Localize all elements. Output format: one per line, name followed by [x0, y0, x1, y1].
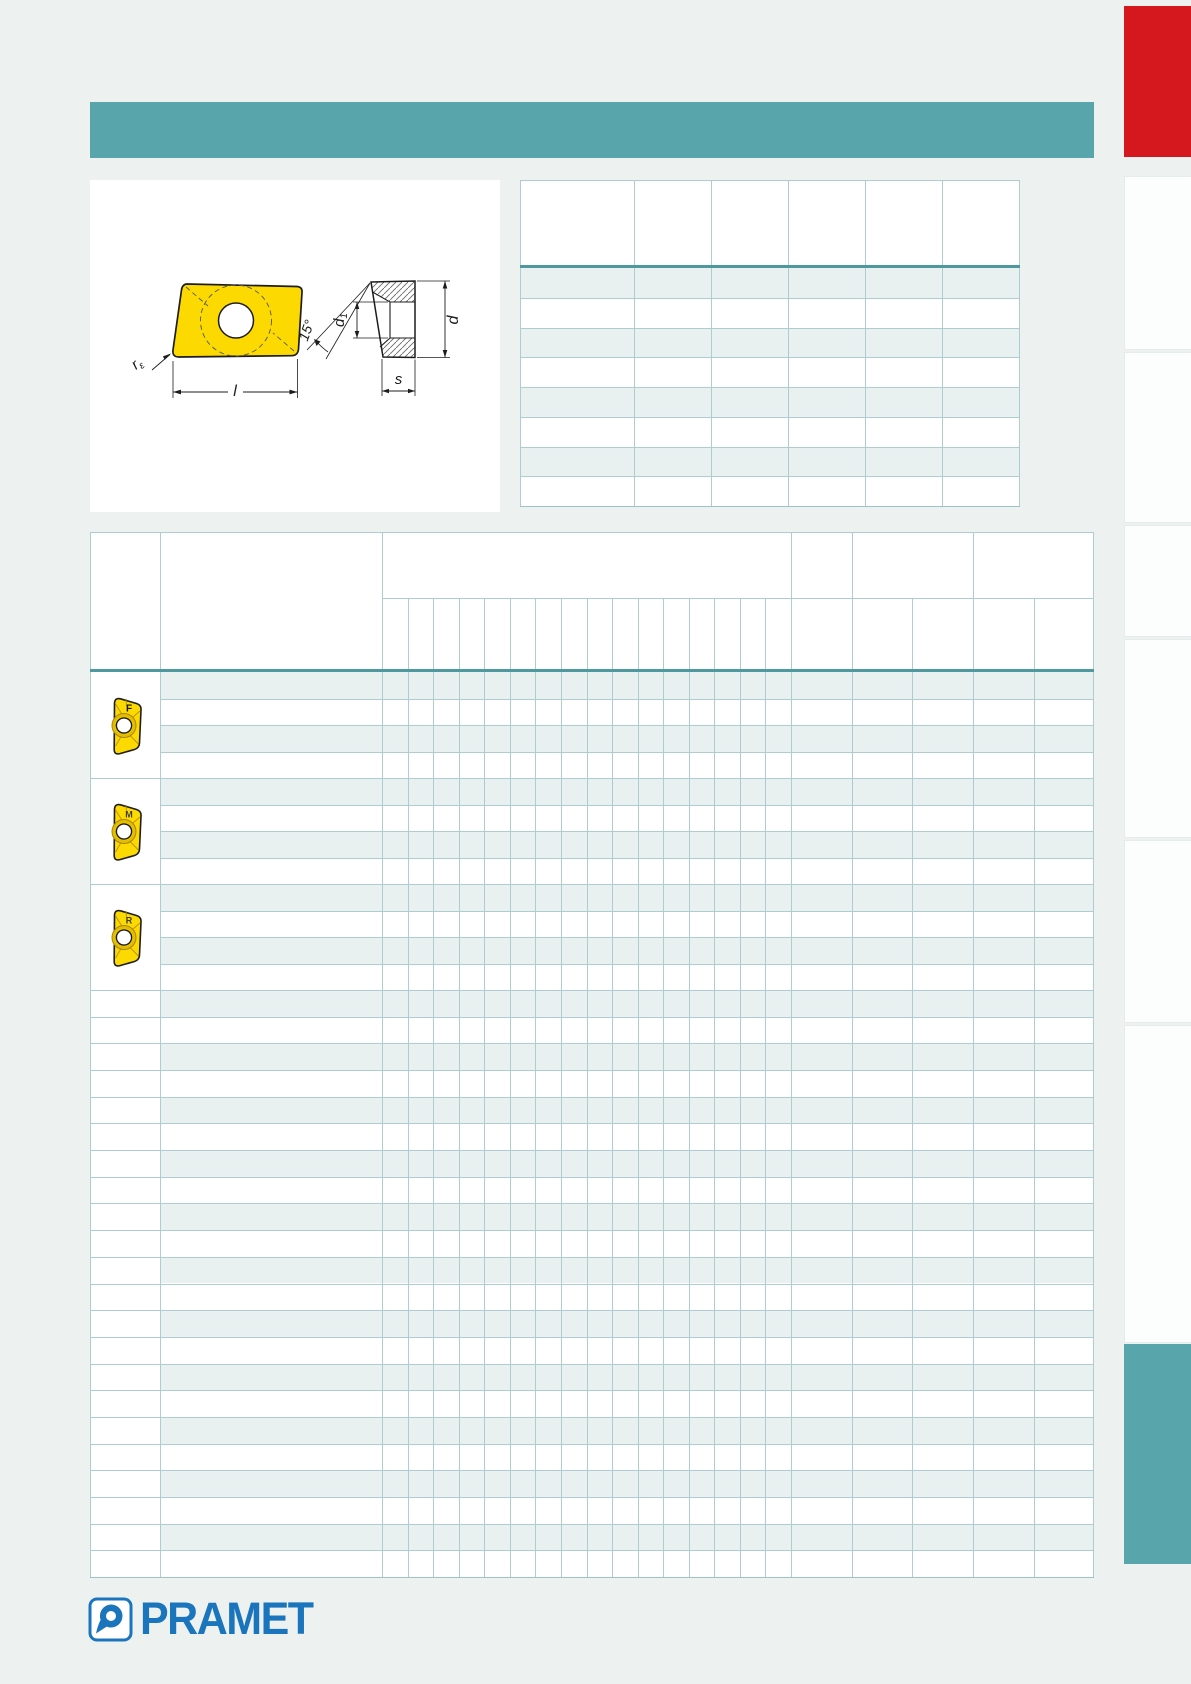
grid-line: [90, 884, 1094, 885]
grid-line: [90, 1017, 1094, 1018]
grid-line: [408, 598, 409, 1577]
grid-line: [90, 1390, 1094, 1391]
grid-line: [90, 1043, 1094, 1044]
grid-line: [90, 1470, 1094, 1471]
grid-line: [520, 357, 1019, 358]
side-tab-1: [1124, 176, 1191, 350]
grid-line: [1019, 180, 1020, 506]
svg-text:s: s: [395, 371, 403, 388]
grid-line: [160, 532, 161, 1577]
svg-text:R: R: [126, 916, 133, 926]
grid-line: [160, 752, 1094, 753]
svg-text:l: l: [233, 383, 237, 400]
side-tab-3: [1124, 525, 1191, 637]
grid-line: [788, 180, 789, 506]
table-row-tint: [160, 884, 1094, 911]
table-header-rule: [90, 669, 1094, 672]
table-row-tint: [160, 1310, 1094, 1337]
grid-line: [90, 1177, 1094, 1178]
grid-line: [433, 598, 434, 1577]
thickness-dimension: s: [382, 359, 415, 396]
grid-line: [459, 598, 460, 1577]
grid-line: [160, 831, 1094, 832]
grid-line: [942, 180, 943, 506]
dimensions-table-header-rule: [520, 265, 1020, 268]
grid-line: [90, 1150, 1094, 1151]
grid-line: [520, 506, 1020, 507]
table-row-tint: [160, 1364, 1094, 1391]
grid-line: [90, 990, 1094, 991]
catalog-page: rε l: [0, 0, 1191, 1684]
pramet-logo: PRAMET: [88, 1596, 313, 1642]
grid-line: [484, 598, 485, 1577]
side-tab-5: [1124, 840, 1191, 1023]
grid-line: [663, 598, 664, 1577]
grid-line: [90, 1123, 1094, 1124]
pramet-logo-icon: [88, 1597, 133, 1642]
grid-line: [90, 1497, 1094, 1498]
length-dimension: l: [173, 359, 298, 400]
table-row-tint: [160, 1043, 1094, 1070]
grid-line: [561, 598, 562, 1577]
grid-line: [90, 532, 1094, 533]
svg-text:d: d: [445, 314, 462, 324]
dimensions-table-row-tint: [520, 447, 1019, 477]
svg-text:rε: rε: [128, 354, 148, 375]
grid-line: [520, 476, 1019, 477]
insert-icon-R: R: [106, 906, 146, 970]
side-tab-active-red: [1124, 6, 1191, 157]
grid-line: [765, 598, 766, 1577]
grid-line: [90, 1524, 1094, 1525]
corner-radius-label: rε: [128, 354, 171, 375]
grid-line: [160, 937, 1094, 938]
insert-icon-F: F: [106, 694, 146, 758]
grid-line: [90, 532, 91, 1577]
table-header-background: [90, 532, 1094, 669]
side-tab-2: [1124, 352, 1191, 523]
grid-line: [90, 1203, 1094, 1204]
grid-line: [1034, 598, 1035, 1577]
grid-line: [865, 180, 866, 506]
dimensions-table-row-tint: [520, 328, 1019, 358]
svg-text:M: M: [125, 810, 133, 820]
table-row-tint: [160, 1524, 1094, 1551]
grid-line: [90, 1070, 1094, 1071]
grid-line: [912, 598, 913, 1577]
table-row-tint: [160, 672, 1094, 699]
grid-line: [90, 1337, 1094, 1338]
grid-line: [634, 180, 635, 506]
grid-line: [90, 1550, 1094, 1551]
side-tab-teal-section: [1124, 1344, 1191, 1564]
grid-line: [90, 1417, 1094, 1418]
grid-line: [535, 598, 536, 1577]
outer-diameter-dimension: d: [417, 281, 462, 358]
svg-text:d1: d1: [331, 313, 350, 327]
pramet-logo-text: PRAMET: [140, 1595, 313, 1644]
table-row-tint: [160, 725, 1094, 752]
table-row-tint: [160, 1470, 1094, 1497]
grid-line: [791, 532, 792, 1577]
grid-line: [638, 598, 639, 1577]
grid-line: [711, 180, 712, 506]
grid-line: [90, 1364, 1094, 1365]
grid-line: [160, 725, 1094, 726]
grid-line: [520, 328, 1019, 329]
grid-line: [587, 598, 588, 1577]
grid-line: [90, 1284, 1094, 1285]
grid-line: [90, 1230, 1094, 1231]
table-row-tint: [160, 1417, 1094, 1444]
dimensions-table-row-tint: [520, 268, 1019, 298]
grid-line: [90, 1577, 1094, 1578]
grid-line: [160, 964, 1094, 965]
grid-line: [520, 447, 1019, 448]
grid-line: [612, 598, 613, 1577]
table-row-tint: [160, 1257, 1094, 1284]
table-row-tint: [160, 831, 1094, 858]
grid-line: [90, 1257, 1094, 1258]
grid-line: [520, 387, 1019, 388]
section-header-bar: [90, 102, 1094, 158]
side-tab-6: [1124, 1025, 1191, 1343]
insert-side-view: [371, 281, 415, 358]
grid-line: [382, 598, 1094, 599]
grid-line: [90, 1097, 1094, 1098]
side-tab-4: [1124, 639, 1191, 838]
grid-line: [382, 532, 383, 1577]
grid-line: [740, 598, 741, 1577]
grid-line: [520, 298, 1019, 299]
grid-line: [510, 598, 511, 1577]
grid-line: [973, 532, 974, 1577]
insert-top-view: [173, 284, 302, 357]
dimensions-table-row-tint: [520, 387, 1019, 417]
grid-line: [90, 778, 1094, 779]
grid-line: [160, 805, 1094, 806]
grid-line: [689, 598, 690, 1577]
grid-line: [520, 417, 1019, 418]
grid-line: [520, 180, 521, 506]
insert-icon-M: M: [106, 800, 146, 864]
table-row-tint: [160, 778, 1094, 805]
grid-line: [520, 180, 1019, 181]
technical-drawing-box: rε l: [90, 180, 500, 512]
svg-text:F: F: [126, 704, 132, 715]
table-row-tint: [160, 937, 1094, 964]
grid-line: [852, 532, 853, 1577]
grid-line: [1093, 532, 1094, 1577]
table-row-tint: [160, 1203, 1094, 1230]
insert-dimension-drawing: rε l: [90, 180, 500, 512]
grid-line: [160, 911, 1094, 912]
grid-line: [160, 858, 1094, 859]
grid-line: [90, 1444, 1094, 1445]
grid-line: [714, 598, 715, 1577]
grid-line: [90, 1310, 1094, 1311]
table-row-tint: [160, 1097, 1094, 1124]
grid-line: [160, 699, 1094, 700]
table-row-tint: [160, 990, 1094, 1017]
table-row-tint: [160, 1150, 1094, 1177]
